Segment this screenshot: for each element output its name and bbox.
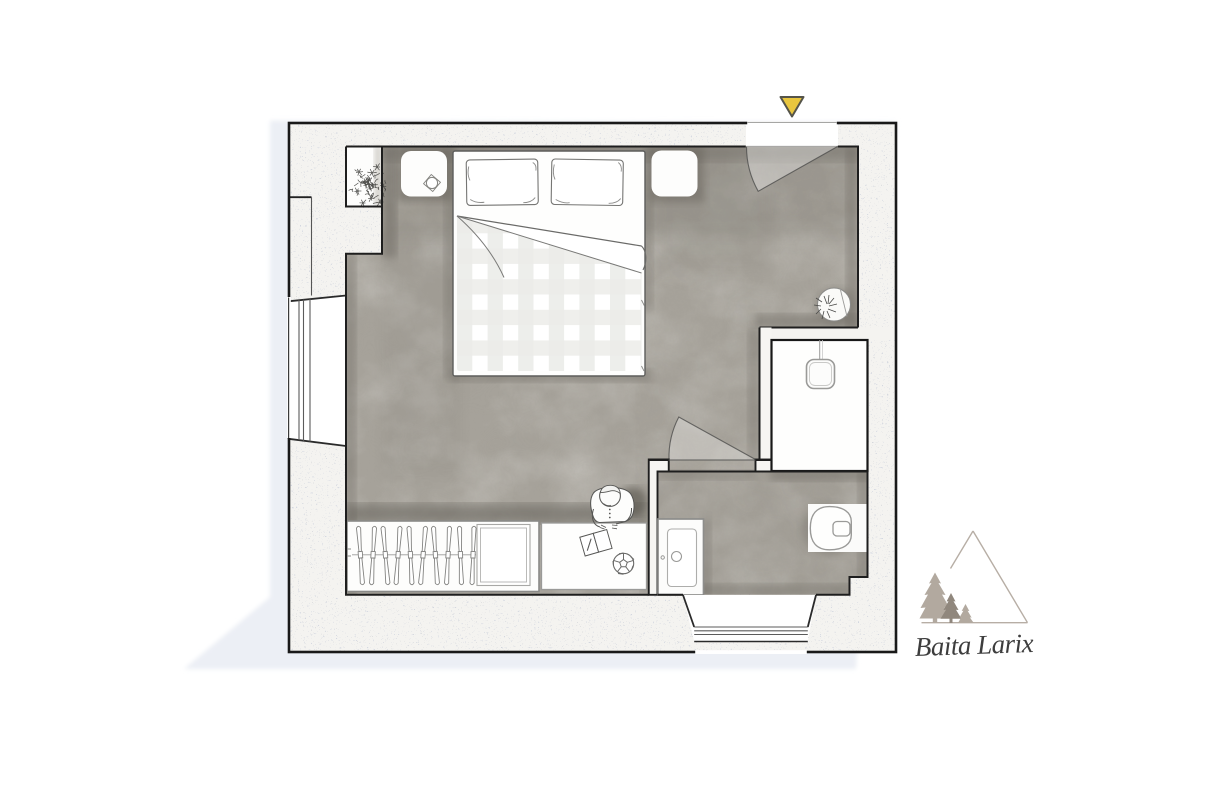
svg-text:Baita Larix: Baita Larix xyxy=(914,628,1034,662)
